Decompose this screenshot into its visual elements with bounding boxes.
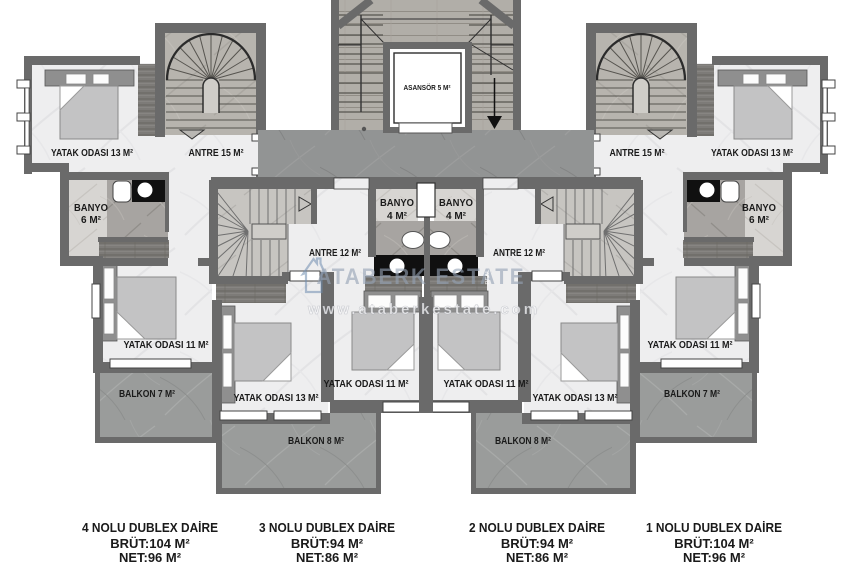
svg-text:NET:96 M²: NET:96 M² bbox=[119, 550, 182, 565]
svg-text:BANYO: BANYO bbox=[380, 198, 414, 209]
svg-text:2 NOLU DUBLEX DAİRE: 2 NOLU DUBLEX DAİRE bbox=[469, 520, 605, 535]
svg-text:4 M²: 4 M² bbox=[446, 211, 467, 222]
svg-text:ANTRE 12 M²: ANTRE 12 M² bbox=[309, 248, 362, 259]
svg-text:REAL: REAL bbox=[485, 269, 491, 285]
svg-text:YATAK ODASI 13 M²: YATAK ODASI 13 M² bbox=[533, 393, 619, 404]
svg-text:BANYO: BANYO bbox=[439, 198, 473, 209]
svg-text:BALKON 8 M²: BALKON 8 M² bbox=[288, 436, 345, 447]
svg-text:BRÜT:104 M²: BRÜT:104 M² bbox=[674, 536, 754, 551]
svg-text:BALKON 8 M²: BALKON 8 M² bbox=[495, 436, 552, 447]
svg-text:NET:86 M²: NET:86 M² bbox=[506, 550, 569, 565]
svg-text:BALKON 7 M²: BALKON 7 M² bbox=[664, 389, 721, 400]
svg-text:YATAK ODASI 11 M²: YATAK ODASI 11 M² bbox=[124, 340, 210, 351]
svg-text:4 NOLU DUBLEX DAİRE: 4 NOLU DUBLEX DAİRE bbox=[82, 520, 218, 535]
svg-text:NET:96 M²: NET:96 M² bbox=[683, 550, 746, 565]
svg-text:NET:86 M²: NET:86 M² bbox=[296, 550, 359, 565]
svg-text:ATABERK ESTATE: ATABERK ESTATE bbox=[317, 264, 526, 289]
svg-text:www.ataberkestate.com: www.ataberkestate.com bbox=[307, 302, 540, 318]
svg-text:YATAK ODASI 13 M²: YATAK ODASI 13 M² bbox=[234, 393, 320, 404]
svg-text:6 M²: 6 M² bbox=[81, 215, 102, 226]
svg-text:ANTRE 15 M²: ANTRE 15 M² bbox=[189, 148, 245, 159]
svg-text:1 NOLU DUBLEX DAİRE: 1 NOLU DUBLEX DAİRE bbox=[646, 520, 782, 535]
svg-text:YATAK ODASI 13 M²: YATAK ODASI 13 M² bbox=[711, 148, 794, 159]
svg-text:YATAK ODASI 13 M²: YATAK ODASI 13 M² bbox=[51, 148, 134, 159]
svg-text:ANTRE 15 M²: ANTRE 15 M² bbox=[610, 148, 666, 159]
svg-text:BANYO: BANYO bbox=[74, 203, 108, 214]
svg-text:BRÜT:104 M²: BRÜT:104 M² bbox=[110, 536, 190, 551]
svg-text:3 NOLU DUBLEX DAİRE: 3 NOLU DUBLEX DAİRE bbox=[259, 520, 395, 535]
svg-text:ASANSÖR 5 M²: ASANSÖR 5 M² bbox=[404, 83, 451, 92]
svg-text:6 M²: 6 M² bbox=[749, 215, 770, 226]
svg-text:BRÜT:94 M²: BRÜT:94 M² bbox=[501, 536, 574, 551]
svg-text:YATAK ODASI 11 M²: YATAK ODASI 11 M² bbox=[324, 379, 410, 390]
svg-text:BANYO: BANYO bbox=[742, 203, 776, 214]
svg-text:YATAK ODASI 11 M²: YATAK ODASI 11 M² bbox=[648, 340, 734, 351]
svg-text:YATAK ODASI 11 M²: YATAK ODASI 11 M² bbox=[444, 379, 530, 390]
svg-text:4 M²: 4 M² bbox=[387, 211, 408, 222]
svg-text:BRÜT:94 M²: BRÜT:94 M² bbox=[291, 536, 364, 551]
svg-text:ANTRE 12 M²: ANTRE 12 M² bbox=[493, 248, 546, 259]
svg-text:BALKON 7 M²: BALKON 7 M² bbox=[119, 389, 176, 400]
